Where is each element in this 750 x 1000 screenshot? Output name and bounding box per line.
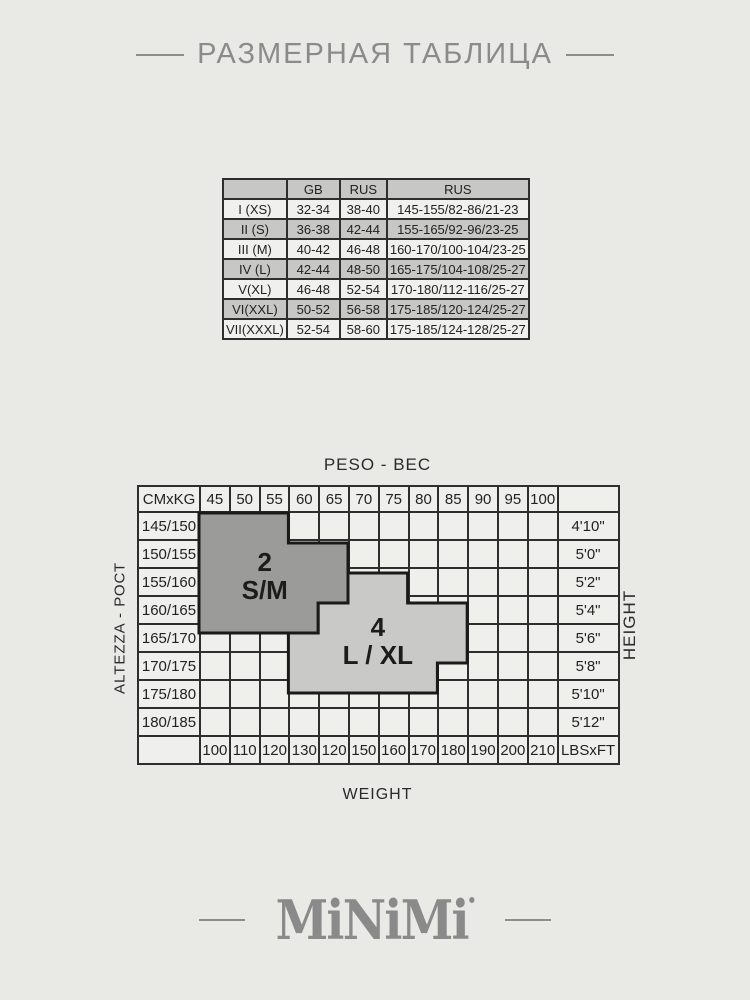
weight-kg-header: 70 [349, 486, 379, 512]
size-cell: 58-60 [340, 319, 387, 339]
grid-corner-empty [558, 486, 619, 512]
size-cell: 48-50 [340, 259, 387, 279]
grid-footer-row: 100110120130120150160170180190200210LBSx… [138, 736, 619, 764]
grid-cell [230, 652, 260, 680]
height-ft-label: 5'8" [558, 652, 619, 680]
height-ft-label: 5'0" [558, 540, 619, 568]
size-table-body: GBRUSRUSI (XS)32-3438-40145-155/82-86/21… [223, 179, 529, 339]
height-cm-label: 160/165 [138, 596, 200, 624]
weight-lbs-footer: 200 [498, 736, 528, 764]
size-cell: 32-34 [287, 199, 340, 219]
size-cell: 40-42 [287, 239, 340, 259]
grid-cell [379, 540, 409, 568]
grid-cell [289, 568, 319, 596]
grid-cell [289, 540, 319, 568]
grid-cell [200, 624, 230, 652]
grid-cell [409, 652, 439, 680]
region-number: 2 [242, 548, 288, 576]
size-row-label: VII(XXXL) [223, 319, 287, 339]
weight-kg-header: 95 [498, 486, 528, 512]
grid-cell [260, 652, 290, 680]
grid-cell [498, 624, 528, 652]
height-cm-label: 170/175 [138, 652, 200, 680]
size-cell: 165-175/104-108/25-27 [387, 259, 529, 279]
grid-cell [468, 652, 498, 680]
page: РАЗМЕРНАЯ ТАБЛИЦА GBRUSRUSI (XS)32-3438-… [0, 0, 750, 1000]
weight-lbs-footer: 100 [200, 736, 230, 764]
grid-cell [200, 568, 230, 596]
grid-cell [349, 680, 379, 708]
size-table-header-row: GBRUSRUS [223, 179, 529, 199]
weight-kg-header: 50 [230, 486, 260, 512]
page-title: РАЗМЕРНАЯ ТАБЛИЦА [197, 38, 553, 71]
size-row-label: IV (L) [223, 259, 287, 279]
grid-cell [260, 512, 290, 540]
grid-cell [409, 568, 439, 596]
grid-header-row: CMxKG4550556065707580859095100 [138, 486, 619, 512]
grid-cell [260, 680, 290, 708]
peso-ves-label: PESO - ВЕС [137, 455, 618, 475]
grid-cell [319, 708, 349, 736]
grid-cell [289, 680, 319, 708]
grid-cell [498, 512, 528, 540]
grid-cell [319, 568, 349, 596]
grid-cell [289, 708, 319, 736]
size-table-header [223, 179, 287, 199]
lbsxft-unit: LBSxFT [558, 736, 619, 764]
grid-cell [289, 512, 319, 540]
height-cm-label: 155/160 [138, 568, 200, 596]
logo-left-rule [199, 919, 245, 921]
grid-data-row: 145/1504'10" [138, 512, 619, 540]
grid-cell [528, 652, 558, 680]
size-cell: 36-38 [287, 219, 340, 239]
grid-cell [468, 596, 498, 624]
height-ft-label: 5'2" [558, 568, 619, 596]
weight-lbs-footer: 110 [230, 736, 260, 764]
region-size: L / XL [343, 641, 413, 669]
size-cell: 52-54 [287, 319, 340, 339]
height-cm-label: 175/180 [138, 680, 200, 708]
grid-cell [438, 596, 468, 624]
size-table-row: VII(XXXL)52-5458-60175-185/124-128/25-27 [223, 319, 529, 339]
weight-kg-header: 75 [379, 486, 409, 512]
grid-cell [349, 512, 379, 540]
altezza-rost-label: ALTEZZA - РОСТ [112, 562, 129, 694]
size-cell: 46-48 [287, 279, 340, 299]
grid-cell [528, 680, 558, 708]
grid-cell [438, 680, 468, 708]
grid-cell [200, 596, 230, 624]
height-cm-label: 145/150 [138, 512, 200, 540]
size-cell: 42-44 [340, 219, 387, 239]
grid-cell [438, 624, 468, 652]
weight-lbs-footer: 190 [468, 736, 498, 764]
grid-cell [289, 596, 319, 624]
weight-kg-header: 45 [200, 486, 230, 512]
weight-kg-header: 60 [289, 486, 319, 512]
grid-cell [528, 568, 558, 596]
grid-cell [319, 512, 349, 540]
grid-cell [260, 708, 290, 736]
grid-cell [498, 568, 528, 596]
grid-cell [468, 540, 498, 568]
grid-corner-cmxkg: CMxKG [138, 486, 200, 512]
grid-cell [409, 540, 439, 568]
height-cm-label: 165/170 [138, 624, 200, 652]
weight-kg-header: 65 [319, 486, 349, 512]
size-cell: 38-40 [340, 199, 387, 219]
grid-data-row: 155/1605'2" [138, 568, 619, 596]
weight-kg-header: 90 [468, 486, 498, 512]
weight-lbs-footer: 120 [319, 736, 349, 764]
weight-lbs-footer: 210 [528, 736, 558, 764]
grid-cell [379, 680, 409, 708]
grid-cell [498, 652, 528, 680]
grid-cell [498, 708, 528, 736]
grid-cell [409, 512, 439, 540]
grid-cell [409, 680, 439, 708]
size-cell: 175-185/120-124/25-27 [387, 299, 529, 319]
height-ft-label: 4'10" [558, 512, 619, 540]
grid-cell [468, 568, 498, 596]
brand-logo: MiNiMi [275, 893, 474, 947]
size-table: GBRUSRUSI (XS)32-3438-40145-155/82-86/21… [222, 178, 530, 340]
weight-kg-header: 55 [260, 486, 290, 512]
grid-data-row: 175/1805'10" [138, 680, 619, 708]
weight-lbs-footer: 170 [409, 736, 439, 764]
size-cell: 42-44 [287, 259, 340, 279]
size-row-label: III (M) [223, 239, 287, 259]
region-number: 4 [343, 613, 413, 641]
weight-height-grid: CMxKG4550556065707580859095100145/1504'1… [137, 485, 618, 783]
grid-cell [379, 512, 409, 540]
size-cell: 50-52 [287, 299, 340, 319]
weight-lbs-footer: 180 [438, 736, 468, 764]
size-cell: 52-54 [340, 279, 387, 299]
height-ft-label: 5'6" [558, 624, 619, 652]
weight-lbs-footer: 130 [289, 736, 319, 764]
grid-cell [200, 708, 230, 736]
size-cell: 56-58 [340, 299, 387, 319]
size-table-header: RUS [387, 179, 529, 199]
region-label-4-lxl: 4 L / XL [343, 613, 413, 669]
weight-kg-header: 100 [528, 486, 558, 512]
region-label-2-sm: 2 S/M [242, 548, 288, 604]
size-table-row: VI(XXL)50-5256-58175-185/120-124/25-27 [223, 299, 529, 319]
grid-cell [260, 624, 290, 652]
size-cell: 46-48 [340, 239, 387, 259]
grid-cell [528, 540, 558, 568]
grid-cell [528, 708, 558, 736]
grid-footer-empty [138, 736, 200, 764]
title-row: РАЗМЕРНАЯ ТАБЛИЦА [0, 38, 750, 71]
grid-cell [289, 624, 319, 652]
size-table-row: I (XS)32-3438-40145-155/82-86/21-23 [223, 199, 529, 219]
grid-cell [230, 680, 260, 708]
size-cell: 155-165/92-96/23-25 [387, 219, 529, 239]
grid-cell [498, 680, 528, 708]
size-row-label: I (XS) [223, 199, 287, 219]
grid-cell [289, 652, 319, 680]
size-table-row: II (S)36-3842-44155-165/92-96/23-25 [223, 219, 529, 239]
grid-data-row: 180/1855'12" [138, 708, 619, 736]
grid-cell [379, 708, 409, 736]
grid-cell [528, 512, 558, 540]
grid-cell [230, 512, 260, 540]
grid-cell [438, 568, 468, 596]
grid-cell [230, 624, 260, 652]
grid-cell [498, 540, 528, 568]
size-cell: 145-155/82-86/21-23 [387, 199, 529, 219]
grid-cell [349, 708, 379, 736]
logo-right-rule [505, 919, 551, 921]
size-table-row: V(XL)46-4852-54170-180/112-116/25-27 [223, 279, 529, 299]
grid-cell [468, 624, 498, 652]
weight-lbs-footer: 120 [260, 736, 290, 764]
grid-cell [438, 708, 468, 736]
height-cm-label: 150/155 [138, 540, 200, 568]
grid-data-row: 150/1555'0" [138, 540, 619, 568]
grid-cell [468, 512, 498, 540]
height-ft-label: 5'4" [558, 596, 619, 624]
grid-cell [230, 708, 260, 736]
grid-cell [468, 680, 498, 708]
grid-cell [409, 708, 439, 736]
size-row-label: II (S) [223, 219, 287, 239]
height-ft-label: 5'10" [558, 680, 619, 708]
size-table-header: RUS [340, 179, 387, 199]
grid-cell [319, 540, 349, 568]
grid-cell [349, 568, 379, 596]
grid-cell [200, 540, 230, 568]
brand-logo-text: MiNiMi [275, 888, 467, 952]
grid-cell [200, 652, 230, 680]
grid-cell [498, 596, 528, 624]
grid-cell [349, 540, 379, 568]
size-table-row: IV (L)42-4448-50165-175/104-108/25-27 [223, 259, 529, 279]
grid-cell [379, 568, 409, 596]
grid-cell [200, 512, 230, 540]
height-label: HEIGHT [620, 590, 640, 660]
grid-cell [468, 708, 498, 736]
size-row-label: VI(XXL) [223, 299, 287, 319]
size-cell: 160-170/100-104/23-25 [387, 239, 529, 259]
grid-cell [319, 680, 349, 708]
registered-dot-icon [469, 897, 474, 903]
title-right-rule [566, 54, 614, 56]
grid-cell [438, 652, 468, 680]
grid-cell [528, 624, 558, 652]
height-ft-label: 5'12" [558, 708, 619, 736]
size-cell: 170-180/112-116/25-27 [387, 279, 529, 299]
size-row-label: V(XL) [223, 279, 287, 299]
weight-lbs-footer: 150 [349, 736, 379, 764]
grid-cell [438, 540, 468, 568]
logo-row: MiNiMi [0, 893, 750, 947]
grid-cell [528, 596, 558, 624]
title-left-rule [136, 54, 184, 56]
grid-cell [409, 596, 439, 624]
weight-label: WEIGHT [137, 786, 618, 804]
region-size: S/M [242, 576, 288, 604]
grid-cell [409, 624, 439, 652]
size-table-row: III (M)40-4246-48160-170/100-104/23-25 [223, 239, 529, 259]
size-table-header: GB [287, 179, 340, 199]
weight-kg-header: 80 [409, 486, 439, 512]
size-cell: 175-185/124-128/25-27 [387, 319, 529, 339]
weight-kg-header: 85 [438, 486, 468, 512]
height-cm-label: 180/185 [138, 708, 200, 736]
weight-lbs-footer: 160 [379, 736, 409, 764]
grid-cell [200, 680, 230, 708]
grid-cell [438, 512, 468, 540]
